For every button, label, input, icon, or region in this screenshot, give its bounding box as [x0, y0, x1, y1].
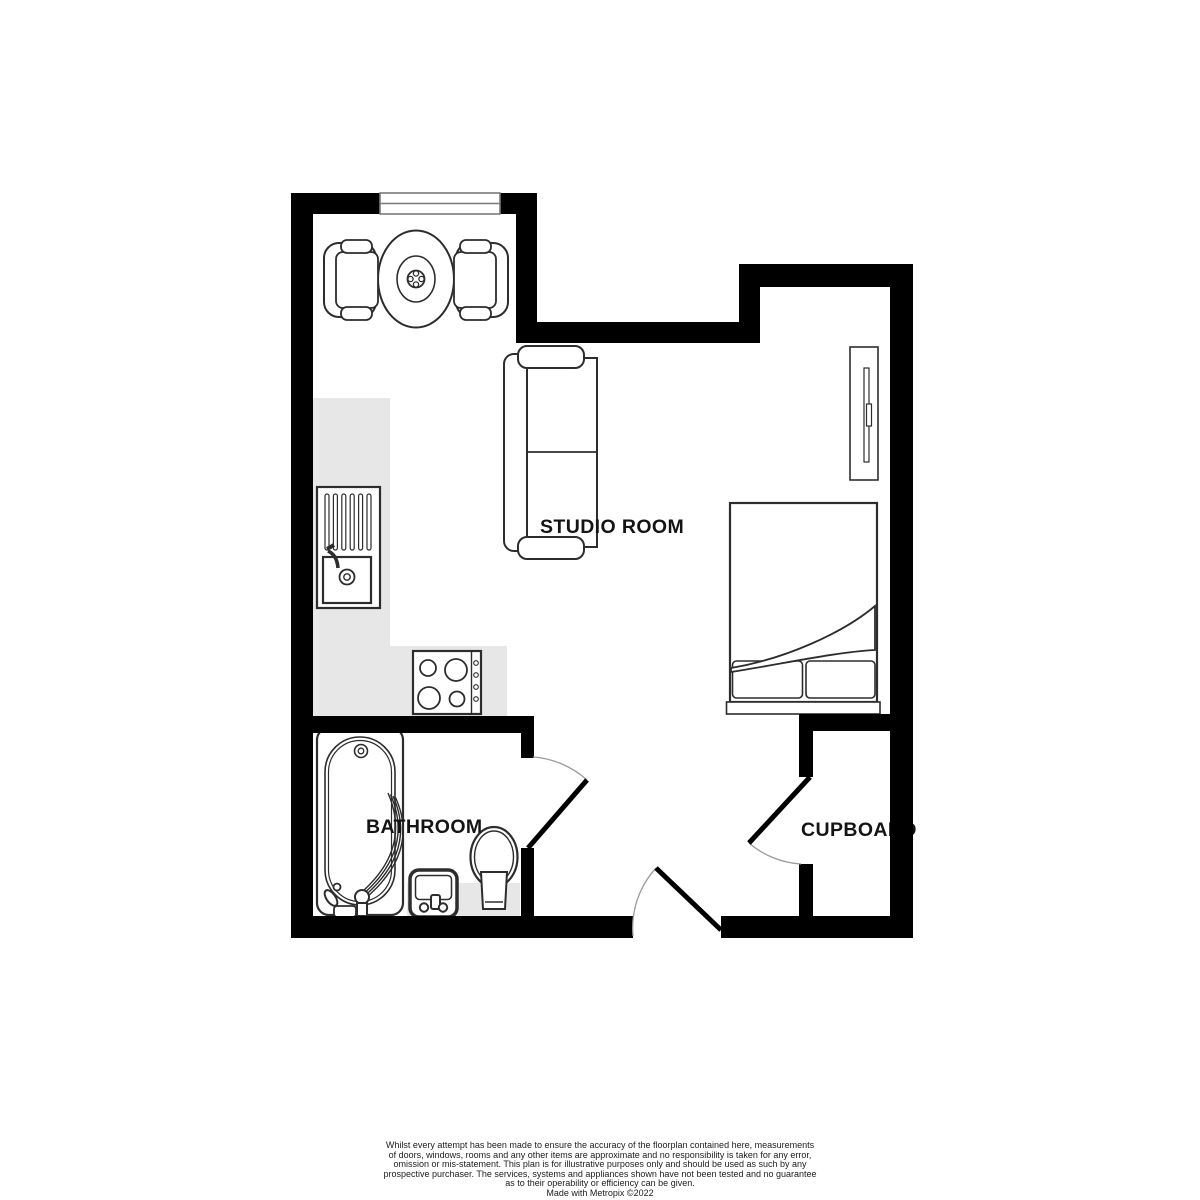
wall-left — [291, 193, 313, 938]
doors — [528, 757, 810, 936]
wall-bathroom-door-jamb — [521, 716, 534, 758]
wall-top-right — [739, 264, 913, 287]
wall-cupboard-door-jamb — [799, 714, 813, 777]
wall-cupboard-left-lower — [799, 864, 813, 928]
wall-bathroom-top — [291, 716, 525, 733]
wall-bottom-right — [721, 916, 913, 938]
wall-bathroom-right-lower — [521, 848, 534, 928]
double-bed-icon — [727, 503, 881, 714]
wall-right — [890, 264, 913, 938]
disclaimer-text: Whilst every attempt has been made to en… — [0, 1141, 1200, 1199]
dining-chair-icon-right — [454, 240, 508, 320]
bathroom-door-swing-icon — [528, 757, 587, 848]
bathroom-label: BATHROOM — [366, 816, 483, 838]
floorplan-drawing: STUDIO ROOM BATHROOM CUPBOARD — [0, 0, 1200, 1200]
studio-room-label: STUDIO ROOM — [540, 516, 684, 538]
pillow-icon — [806, 661, 875, 698]
wardrobe-icon — [850, 347, 878, 480]
dining-chair-icon-left — [324, 240, 378, 320]
bath-step — [334, 906, 356, 917]
floorplan-page: STUDIO ROOM BATHROOM CUPBOARD — [0, 0, 1200, 1200]
kitchen-sink-drainer-icon — [317, 487, 380, 608]
round-dining-table-icon — [378, 231, 454, 328]
wall-step-horizontal — [516, 322, 760, 343]
window-icon — [380, 193, 500, 214]
entry-door-swing-icon — [633, 868, 721, 936]
bed-footboard — [727, 702, 881, 714]
wall-bottom-left — [291, 916, 633, 938]
washbasin-icon — [410, 870, 457, 917]
hob-icon — [413, 651, 481, 714]
disclaimer-credit: Made with Metropix ©2022 — [0, 1189, 1200, 1199]
wall-step-vertical-left — [516, 193, 537, 343]
